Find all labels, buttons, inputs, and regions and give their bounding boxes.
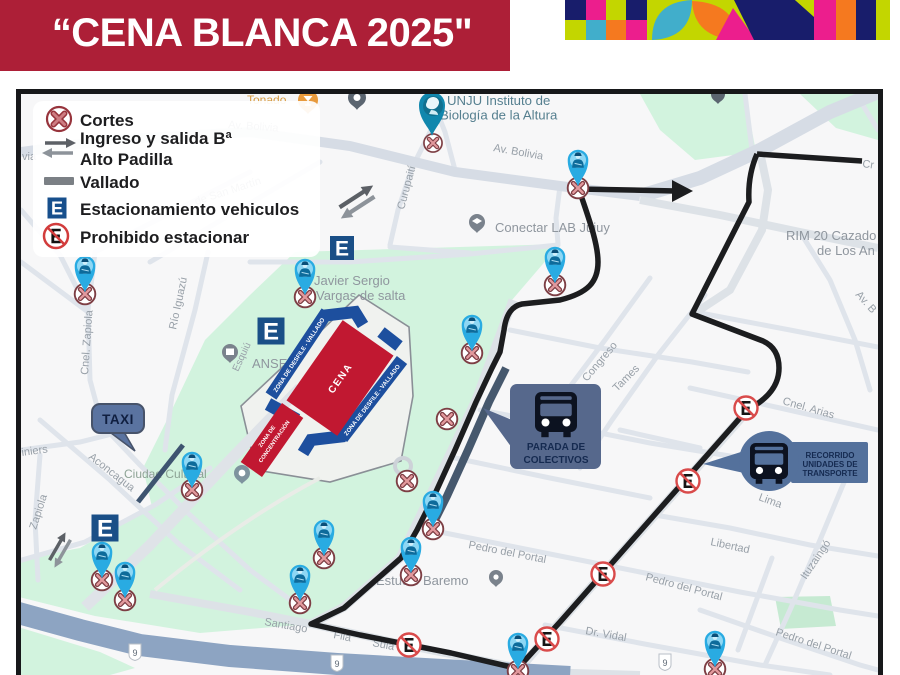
svg-text:E: E xyxy=(51,199,63,219)
svg-text:9: 9 xyxy=(334,659,339,669)
svg-text:RIM 20 Cazado: RIM 20 Cazado xyxy=(786,228,876,243)
svg-text:Prohibido estacionar: Prohibido estacionar xyxy=(80,228,249,247)
svg-text:Cr: Cr xyxy=(862,158,875,172)
svg-text:Ingreso y salida Bª: Ingreso y salida Bª xyxy=(80,129,232,148)
svg-text:Biología de la Altura: Biología de la Altura xyxy=(440,108,558,123)
svg-text:9: 9 xyxy=(662,658,667,668)
svg-text:9: 9 xyxy=(132,648,137,658)
svg-text:E: E xyxy=(97,516,113,543)
svg-text:TAXI: TAXI xyxy=(102,412,134,427)
svg-text:UNJU Instituto de: UNJU Instituto de xyxy=(447,93,550,108)
svg-text:Vallado: Vallado xyxy=(80,173,140,192)
svg-text:PARADA DE: PARADA DE xyxy=(527,442,586,453)
svg-text:UNIDADES DE: UNIDADES DE xyxy=(802,460,858,469)
svg-text:E: E xyxy=(263,319,279,346)
svg-text:Javier Sergio: Javier Sergio xyxy=(314,273,390,288)
svg-text:Alto Padilla: Alto Padilla xyxy=(80,150,173,169)
svg-text:E: E xyxy=(335,238,349,261)
svg-text:Estudio Baremo: Estudio Baremo xyxy=(376,573,469,588)
svg-text:Estacionamiento vehiculos: Estacionamiento vehiculos xyxy=(80,200,299,219)
svg-text:RECORRIDO: RECORRIDO xyxy=(806,451,855,460)
svg-text:TRANSPORTE: TRANSPORTE xyxy=(802,469,858,478)
svg-text:“CENA BLANCA 2025": “CENA BLANCA 2025" xyxy=(52,11,472,55)
svg-text:de Los An: de Los An xyxy=(817,243,875,258)
svg-text:Cortes: Cortes xyxy=(80,111,134,130)
svg-text:COLECTIVOS: COLECTIVOS xyxy=(523,455,588,466)
svg-text:Vargas de salta: Vargas de salta xyxy=(316,288,406,303)
